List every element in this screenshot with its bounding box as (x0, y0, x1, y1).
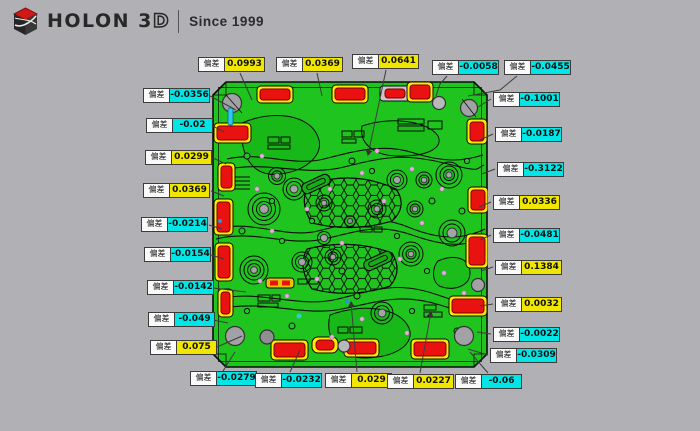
deviation-label: 偏差 (147, 280, 174, 295)
deviation-label: 偏差 (141, 217, 168, 232)
deviation-value: 0.0641 (379, 54, 419, 69)
deviation-value: -0.0142 (174, 280, 214, 295)
annotation-bottom-3[interactable]: 偏差 0.029 (325, 373, 392, 388)
brand-tagline: Since 1999 (189, 14, 264, 29)
deviation-value: 0.0369 (170, 183, 210, 198)
deviation-value: 0.1384 (522, 260, 562, 275)
deviation-value: 0.0227 (414, 374, 454, 389)
annotation-right-8[interactable]: 偏差 -0.0022 (493, 327, 560, 342)
deviation-value: -0.0022 (520, 327, 560, 342)
deviation-value: 0.0993 (225, 57, 265, 72)
deviation-label: 偏差 (493, 195, 520, 210)
annotation-top-1[interactable]: 偏差 0.0993 (198, 57, 265, 72)
deviation-value: -0.02 (173, 118, 213, 133)
deviation-label: 偏差 (146, 118, 173, 133)
annotation-left-4[interactable]: 偏差 0.0369 (143, 183, 210, 198)
deviation-value: -0.0154 (171, 247, 211, 262)
deviation-value: 0.0369 (303, 57, 343, 72)
deviation-value: -0.0309 (517, 348, 557, 363)
deviation-label: 偏差 (497, 162, 524, 177)
deviation-label: 偏差 (495, 297, 522, 312)
annotation-left-6[interactable]: 偏差 -0.0154 (144, 247, 211, 262)
deviation-value: -0.049 (175, 312, 215, 327)
annotation-top-3[interactable]: 偏差 0.0641 (352, 54, 419, 69)
deviation-label: 偏差 (504, 60, 531, 75)
deviation-value: -0.0232 (282, 373, 322, 388)
deviation-value: -0.0455 (531, 60, 571, 75)
deviation-label: 偏差 (276, 57, 303, 72)
deviation-label: 偏差 (198, 57, 225, 72)
brand-name: HOLON 3D (47, 10, 170, 32)
deviation-label: 偏差 (255, 373, 282, 388)
deviation-value: -0.0279 (217, 371, 257, 386)
deviation-value: -0.0058 (459, 60, 499, 75)
annotation-right-2[interactable]: 偏差 -0.0187 (495, 127, 562, 142)
brand-cube-icon (12, 7, 39, 36)
annotation-left-1[interactable]: 偏差 -0.0356 (143, 88, 210, 103)
deviation-label: 偏差 (190, 371, 217, 386)
deviation-value: 0.029 (352, 373, 392, 388)
annotation-left-2[interactable]: 偏差 -0.02 (146, 118, 213, 133)
annotation-bottom-1[interactable]: 偏差 -0.0279 (190, 371, 257, 386)
deviation-value: -0.0481 (520, 228, 560, 243)
annotation-right-9[interactable]: 偏差 -0.0309 (490, 348, 557, 363)
deviation-label: 偏差 (145, 150, 172, 165)
deviation-label: 偏差 (495, 127, 522, 142)
annotation-top-5[interactable]: 偏差 -0.0455 (504, 60, 571, 75)
annotation-right-5[interactable]: 偏差 -0.0481 (493, 228, 560, 243)
annotation-right-6[interactable]: 偏差 0.1384 (495, 260, 562, 275)
deviation-label: 偏差 (325, 373, 352, 388)
annotation-right-1[interactable]: 偏差 -0.1001 (493, 92, 560, 107)
annotation-left-9[interactable]: 偏差 0.075 (150, 340, 217, 355)
deviation-value: -0.0187 (522, 127, 562, 142)
deviation-label: 偏差 (490, 348, 517, 363)
annotation-top-4[interactable]: 偏差 -0.0058 (432, 60, 499, 75)
deviation-heatmap-viewport[interactable] (212, 81, 488, 368)
deviation-label: 偏差 (495, 260, 522, 275)
annotation-left-7[interactable]: 偏差 -0.0142 (147, 280, 214, 295)
deviation-label: 偏差 (144, 247, 171, 262)
deviation-value: 0.0299 (172, 150, 212, 165)
screenshot-root: HOLON 3D Since 1999 (0, 0, 700, 431)
brand-divider (178, 10, 179, 33)
deviation-label: 偏差 (352, 54, 379, 69)
brand-logo: HOLON 3D Since 1999 (12, 6, 264, 36)
deviation-value: -0.0214 (168, 217, 208, 232)
deviation-label: 偏差 (148, 312, 175, 327)
deviation-value: -0.1001 (520, 92, 560, 107)
deviation-label: 偏差 (455, 374, 482, 389)
annotation-right-3[interactable]: 偏差 -0.3122 (497, 162, 564, 177)
deviation-value: 0.075 (177, 340, 217, 355)
deviation-label: 偏差 (143, 88, 170, 103)
annotation-left-5[interactable]: 偏差 -0.0214 (141, 217, 208, 232)
deviation-label: 偏差 (493, 92, 520, 107)
deviation-value: -0.0356 (170, 88, 210, 103)
deviation-value: -0.06 (482, 374, 522, 389)
annotation-right-4[interactable]: 偏差 0.0336 (493, 195, 560, 210)
annotation-bottom-2[interactable]: 偏差 -0.0232 (255, 373, 322, 388)
deviation-value: 0.0032 (522, 297, 562, 312)
annotation-left-3[interactable]: 偏差 0.0299 (145, 150, 212, 165)
deviation-label: 偏差 (493, 327, 520, 342)
annotation-left-8[interactable]: 偏差 -0.049 (148, 312, 215, 327)
deviation-label: 偏差 (387, 374, 414, 389)
deviation-label: 偏差 (150, 340, 177, 355)
deviation-value: -0.3122 (524, 162, 564, 177)
deviation-label: 偏差 (432, 60, 459, 75)
annotation-top-2[interactable]: 偏差 0.0369 (276, 57, 343, 72)
deviation-value: 0.0336 (520, 195, 560, 210)
annotation-bottom-4[interactable]: 偏差 0.0227 (387, 374, 454, 389)
deviation-label: 偏差 (493, 228, 520, 243)
annotation-bottom-5[interactable]: 偏差 -0.06 (455, 374, 522, 389)
deviation-label: 偏差 (143, 183, 170, 198)
annotation-right-7[interactable]: 偏差 0.0032 (495, 297, 562, 312)
